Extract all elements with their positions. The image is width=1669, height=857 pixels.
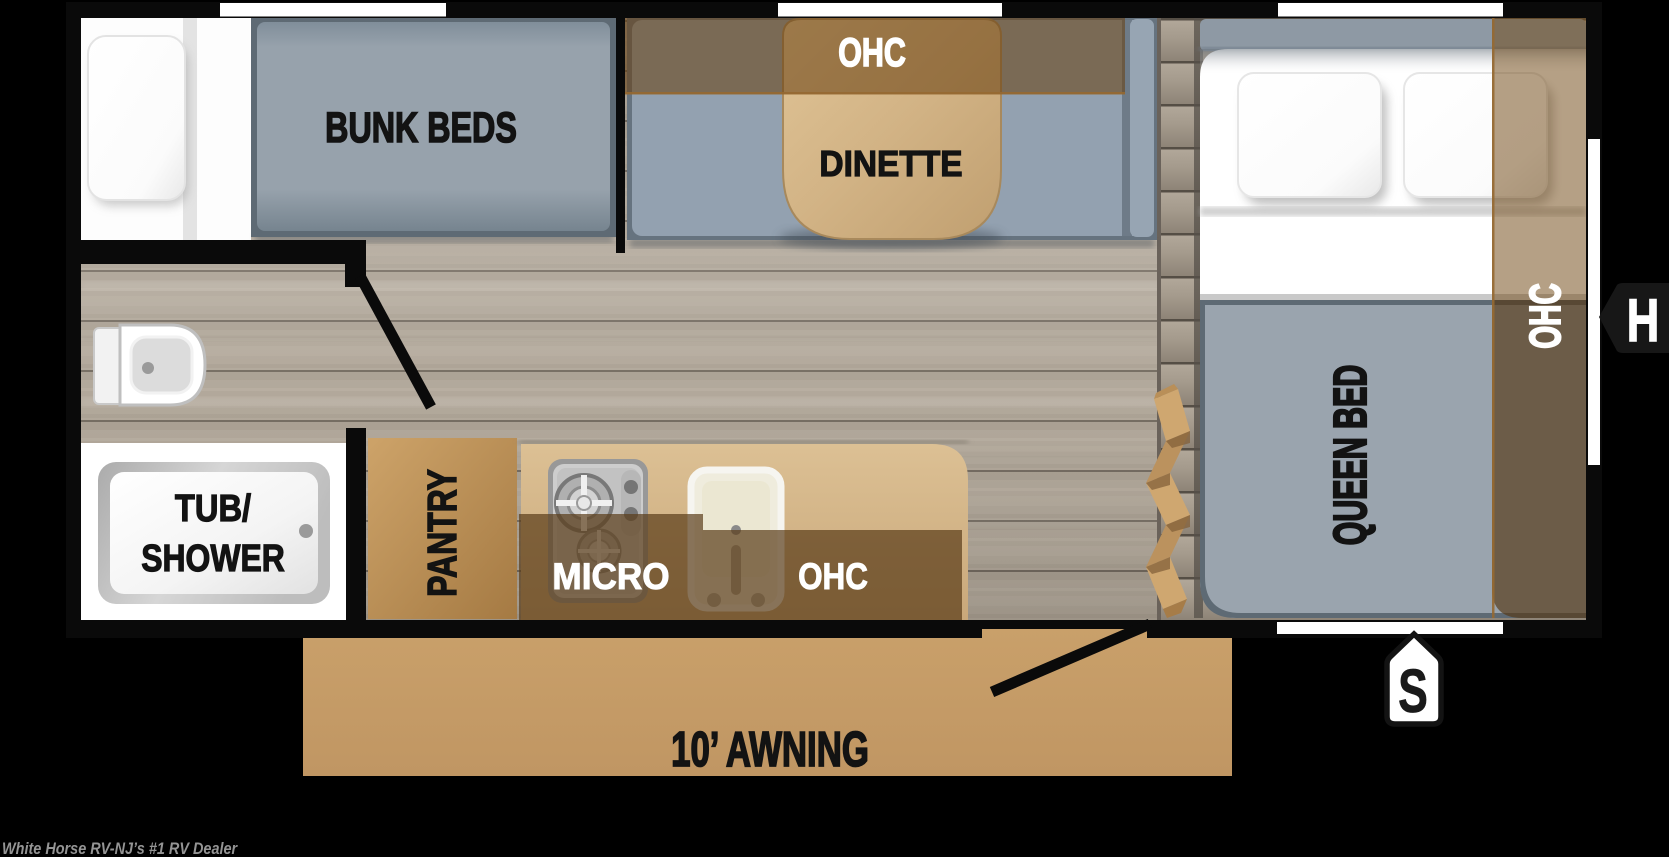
svg-text:QUEEN BED: QUEEN BED [1326,365,1377,545]
svg-text:S: S [1398,658,1428,725]
svg-text:DINETTE: DINETTE [819,145,962,184]
svg-text:10’ AWNING: 10’ AWNING [671,723,869,777]
svg-text:OHC: OHC [838,30,906,75]
svg-text:OHC: OHC [1520,283,1569,348]
svg-text:OHC: OHC [798,557,868,598]
svg-text:H: H [1627,288,1659,355]
svg-text:SHOWER: SHOWER [141,537,285,579]
svg-text:BUNK BEDS: BUNK BEDS [325,105,517,153]
svg-text:White Horse RV-NJ’s #1 RV Deal: White Horse RV-NJ’s #1 RV Dealer [2,840,238,857]
svg-text:PANTRY: PANTRY [419,469,465,597]
svg-text:MICRO: MICRO [552,555,669,597]
svg-text:TUB/: TUB/ [175,487,251,530]
